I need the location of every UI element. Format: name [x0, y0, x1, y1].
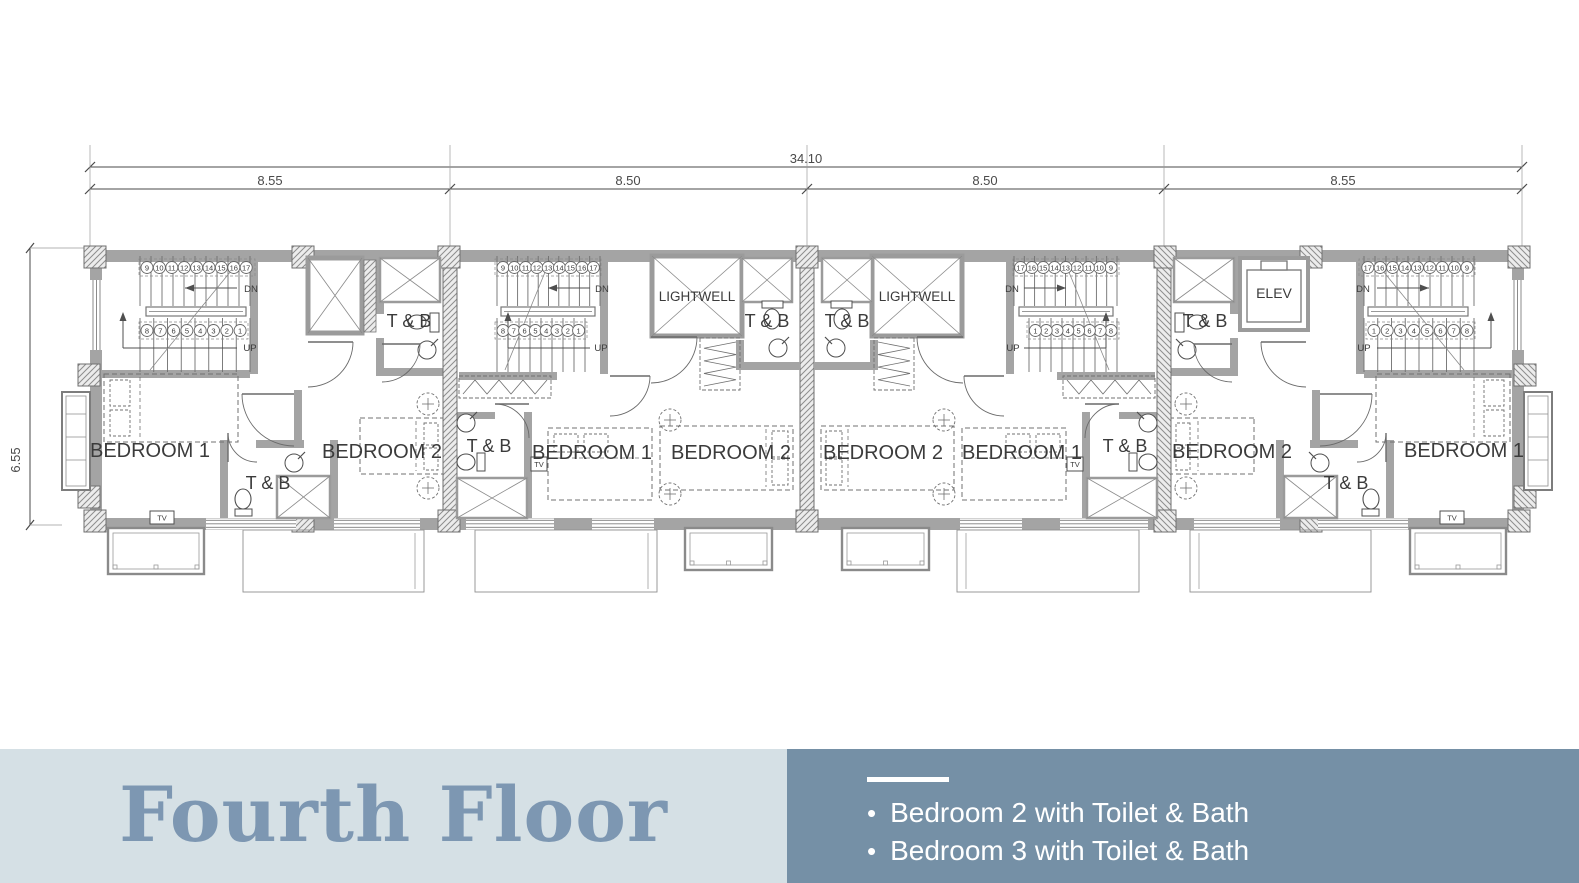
stair-number: 13: [1413, 263, 1421, 272]
room-label-toilet-bath: T & B: [387, 311, 432, 331]
stair-number: 14: [205, 263, 213, 272]
stair-number: 10: [1096, 263, 1104, 272]
stair-label-up: UP: [594, 343, 607, 354]
feature-item: •Bedroom 2 with Toilet & Bath: [867, 794, 1579, 832]
stair-number: 15: [1388, 263, 1396, 272]
stair-number: 14: [555, 263, 563, 272]
stair-number: 3: [211, 326, 215, 335]
stair-number: 14: [1050, 263, 1058, 272]
stair-number: 5: [185, 326, 189, 335]
stair-number: 17: [242, 263, 250, 272]
dim-height: 6.55: [8, 447, 23, 472]
stair-number: 3: [1055, 326, 1059, 335]
stair-number: 4: [544, 326, 548, 335]
dim-segment: 8.50: [615, 173, 640, 188]
stair-number: 11: [1085, 263, 1093, 272]
stair-label-down: DN: [595, 284, 609, 295]
stair-number: 16: [1028, 263, 1036, 272]
stair-number: 8: [501, 326, 505, 335]
stair-number: 9: [1109, 263, 1113, 272]
stair-number: 14: [1401, 263, 1409, 272]
room-label-bedroom-1: BEDROOM 1: [962, 442, 1082, 464]
stair-label-up: UP: [243, 343, 256, 354]
stair-number: 6: [1438, 326, 1442, 335]
stair-number: 2: [1385, 326, 1389, 335]
stair-number: 10: [510, 263, 518, 272]
page: 34.108.558.508.508.556.55BEDROOM 1BEDROO…: [0, 0, 1579, 883]
room-label-bedroom-2: BEDROOM 2: [671, 442, 791, 464]
dim-segment: 8.50: [972, 173, 997, 188]
stair-number: 6: [523, 326, 527, 335]
stair-number: 8: [145, 326, 149, 335]
dim-total: 34.10: [790, 151, 823, 166]
stair-number: 9: [145, 263, 149, 272]
stair-number: 16: [1376, 263, 1384, 272]
feature-item-label: Bedroom 3 with Toilet & Bath: [890, 835, 1249, 866]
stair-number: 12: [180, 263, 188, 272]
room-label-bedroom-2: BEDROOM 2: [1172, 441, 1292, 463]
stair-number: 17: [1364, 263, 1372, 272]
room-label-toilet-bath: T & B: [246, 473, 291, 493]
room-label-toilet-bath: T & B: [745, 311, 790, 331]
stair-number: 11: [168, 263, 176, 272]
room-label-bedroom-1: BEDROOM 1: [90, 440, 210, 462]
stair-number: 15: [1039, 263, 1047, 272]
label-tv: TV: [157, 514, 167, 523]
stair-number: 5: [533, 326, 537, 335]
feature-list: •Bedroom 2 with Toilet & Bath •Bedroom 3…: [867, 794, 1579, 870]
floor-title-panel: Fourth Floor: [0, 749, 787, 883]
stair-number: 15: [567, 263, 575, 272]
stair-number: 13: [544, 263, 552, 272]
stair-number: 6: [1087, 326, 1091, 335]
stair-number: 6: [172, 326, 176, 335]
stair-number: 9: [1465, 263, 1469, 272]
stair-number: 12: [533, 263, 541, 272]
stair-number: 17: [589, 263, 597, 272]
caption-band: Fourth Floor •Bedroom 2 with Toilet & Ba…: [0, 749, 1579, 883]
bullet-icon: •: [867, 832, 876, 870]
stair-number: 8: [1465, 326, 1469, 335]
feature-item: •Bedroom 3 with Toilet & Bath: [867, 832, 1579, 870]
stair-number: 1: [577, 326, 581, 335]
dim-segment: 8.55: [1330, 173, 1355, 188]
label-tv: TV: [1070, 460, 1080, 469]
room-label-toilet-bath: T & B: [1324, 473, 1369, 493]
room-label-lightwell: LIGHTWELL: [659, 289, 736, 304]
stair-number: 11: [522, 263, 530, 272]
stair-number: 1: [1033, 326, 1037, 335]
stair-number: 7: [1098, 326, 1102, 335]
room-label-bedroom-2: BEDROOM 2: [823, 442, 943, 464]
floor-features-panel: •Bedroom 2 with Toilet & Bath •Bedroom 3…: [787, 749, 1579, 883]
stair-label-up: UP: [1357, 343, 1370, 354]
room-label-toilet-bath: T & B: [467, 436, 512, 456]
floor-title: Fourth Floor: [119, 777, 668, 855]
stair-number: 2: [1044, 326, 1048, 335]
stair-label-down: DN: [1356, 284, 1370, 295]
stair-number: 15: [217, 263, 225, 272]
stair-number: 3: [555, 326, 559, 335]
room-label-elevator: ELEV: [1256, 285, 1292, 301]
stair-number: 17: [1016, 263, 1024, 272]
divider-line: [867, 777, 949, 782]
bullet-icon: •: [867, 794, 876, 832]
stair-number: 10: [155, 263, 163, 272]
stair-number: 1: [238, 326, 242, 335]
stair-number: 9: [501, 263, 505, 272]
room-label-toilet-bath: T & B: [825, 311, 870, 331]
label-tv: TV: [1447, 514, 1457, 523]
stair-number: 1: [1372, 326, 1376, 335]
stair-number: 10: [1450, 263, 1458, 272]
stair-number: 7: [158, 326, 162, 335]
label-tv: TV: [534, 460, 544, 469]
room-label-toilet-bath: T & B: [1183, 311, 1228, 331]
room-label-bedroom-2: BEDROOM 2: [322, 441, 442, 463]
stair-label-down: DN: [244, 284, 258, 295]
stair-number: 5: [1425, 326, 1429, 335]
feature-item-label: Bedroom 2 with Toilet & Bath: [890, 797, 1249, 828]
stair-label-up: UP: [1006, 343, 1019, 354]
stair-number: 16: [230, 263, 238, 272]
stair-number: 2: [566, 326, 570, 335]
stair-number: 12: [1073, 263, 1081, 272]
room-label-toilet-bath: T & B: [1103, 436, 1148, 456]
room-label-lightwell: LIGHTWELL: [879, 289, 956, 304]
stair-number: 11: [1438, 263, 1446, 272]
stair-number: 13: [192, 263, 200, 272]
stair-number: 7: [512, 326, 516, 335]
room-label-bedroom-1: BEDROOM 1: [1404, 440, 1524, 462]
room-label-bedroom-1: BEDROOM 1: [532, 442, 652, 464]
stair-number: 3: [1398, 326, 1402, 335]
stair-number: 7: [1452, 326, 1456, 335]
stair-label-down: DN: [1005, 284, 1019, 295]
stair-number: 4: [1412, 326, 1416, 335]
stair-number: 16: [578, 263, 586, 272]
stair-number: 12: [1426, 263, 1434, 272]
dim-segment: 8.55: [257, 173, 282, 188]
stair-number: 5: [1077, 326, 1081, 335]
stair-number: 13: [1062, 263, 1070, 272]
stair-number: 4: [198, 326, 202, 335]
stair-number: 8: [1109, 326, 1113, 335]
stair-number: 4: [1066, 326, 1070, 335]
floor-plan: 34.108.558.508.508.556.55BEDROOM 1BEDROO…: [0, 0, 1579, 749]
stair-number: 2: [225, 326, 229, 335]
